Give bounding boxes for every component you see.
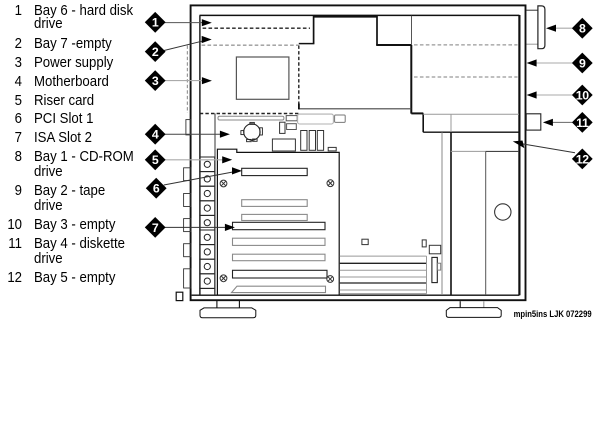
svg-text:1: 1 [152, 16, 159, 30]
svg-text:7: 7 [152, 221, 159, 235]
svg-text:4: 4 [152, 128, 159, 142]
svg-text:9: 9 [579, 56, 586, 70]
svg-text:2: 2 [152, 45, 159, 59]
svg-text:11: 11 [576, 116, 589, 130]
svg-text:10: 10 [576, 88, 590, 102]
svg-text:5: 5 [152, 153, 159, 167]
svg-text:6: 6 [153, 182, 160, 196]
svg-text:8: 8 [579, 22, 586, 36]
svg-text:mpin5ins LJK 072299: mpin5ins LJK 072299 [514, 308, 592, 319]
svg-text:3: 3 [152, 74, 159, 88]
svg-text:12: 12 [576, 152, 590, 166]
